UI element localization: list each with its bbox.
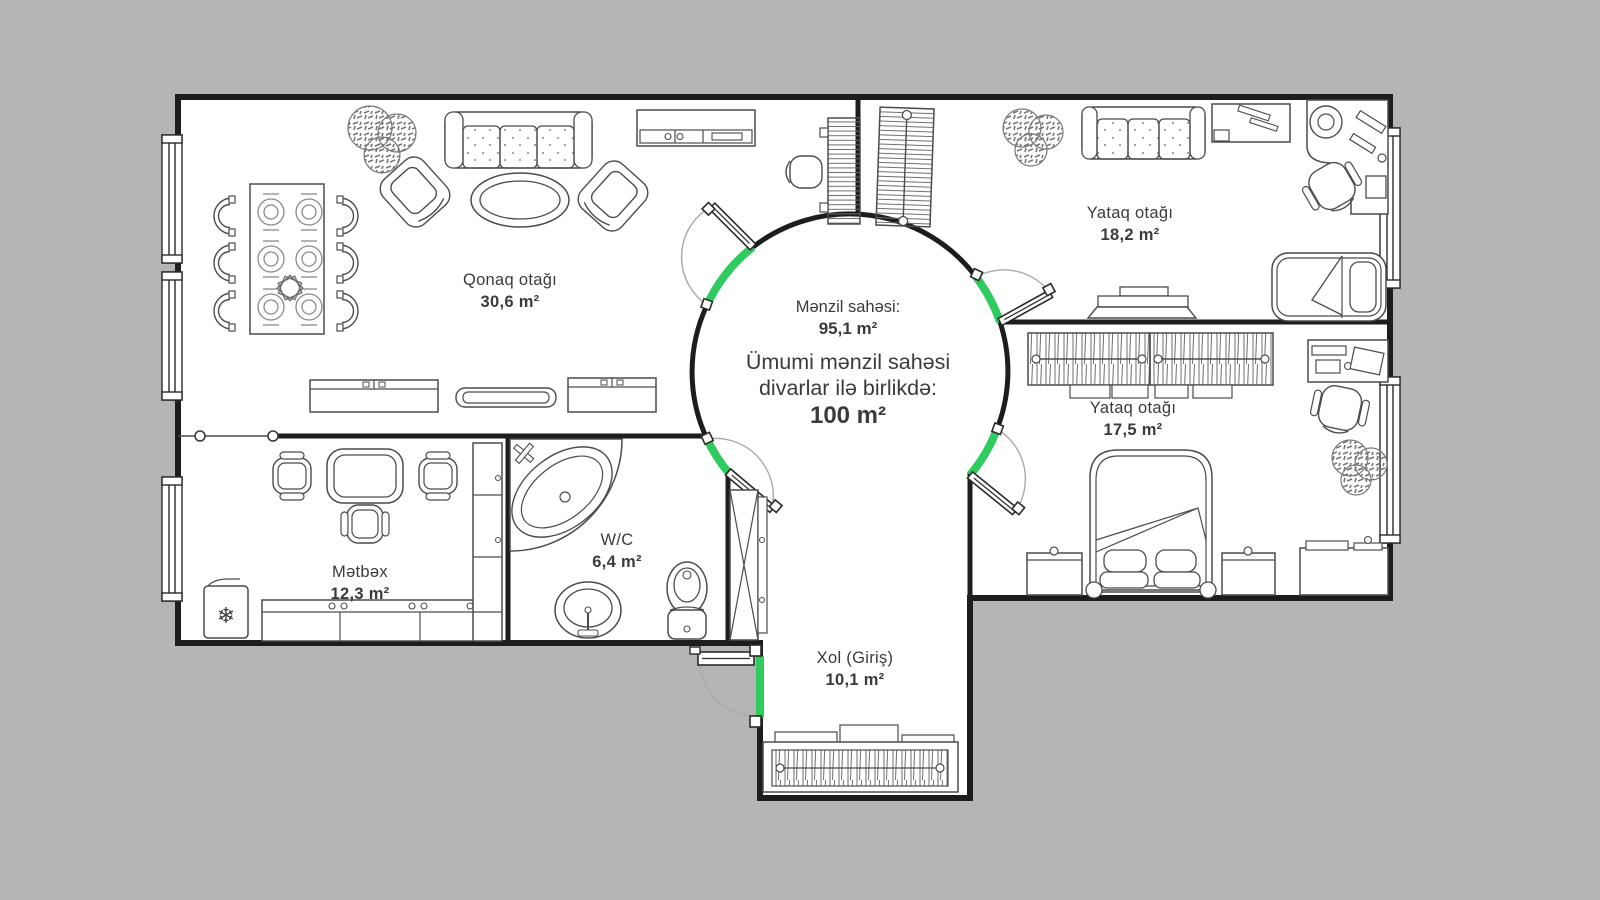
window bbox=[162, 272, 182, 400]
toilet bbox=[667, 562, 707, 639]
fridge: ❄ bbox=[204, 579, 248, 638]
apartment-outline bbox=[178, 97, 1390, 798]
room-name: Xol (Giriş) bbox=[817, 648, 894, 670]
room-area: 30,6 m² bbox=[463, 292, 557, 314]
shoe-cabinet bbox=[763, 725, 958, 792]
window bbox=[162, 135, 182, 263]
coffee-rug bbox=[471, 173, 569, 227]
tv-console bbox=[637, 110, 755, 146]
summary-gross-area-value: 100 m² bbox=[746, 401, 950, 431]
double-bed bbox=[1086, 450, 1216, 598]
floor-plan-drawing: ❄ bbox=[0, 0, 1600, 900]
kitchen-table bbox=[327, 449, 403, 503]
room-area: 18,2 m² bbox=[1087, 225, 1173, 247]
kitchen-chair bbox=[419, 452, 457, 500]
window bbox=[162, 477, 182, 601]
room-label-kitchen: Mətbəx 12,3 m² bbox=[331, 562, 390, 606]
room-name: Yataq otağı bbox=[1090, 398, 1176, 420]
mirror-wardrobe bbox=[730, 490, 767, 640]
nightstand bbox=[1222, 547, 1275, 595]
room-label-wc: W/C 6,4 m² bbox=[592, 530, 642, 574]
kitchen-counter bbox=[262, 600, 500, 641]
sofa bbox=[445, 112, 592, 168]
room-area: 6,4 m² bbox=[592, 552, 642, 574]
room-area: 10,1 m² bbox=[817, 670, 894, 692]
entrance-door bbox=[690, 645, 764, 727]
room-area: 12,3 m² bbox=[331, 584, 390, 606]
changing-table bbox=[1212, 104, 1290, 142]
dining-table bbox=[250, 184, 324, 334]
tall-cabinet bbox=[473, 443, 502, 641]
pillow bbox=[1156, 550, 1196, 572]
pillow bbox=[1350, 262, 1376, 312]
room-label-hall: Xol (Giriş) 10,1 m² bbox=[817, 648, 894, 692]
bathroom-sink bbox=[555, 582, 621, 638]
room-label-bedroom1: Yataq otağı 18,2 m² bbox=[1087, 203, 1173, 247]
summary-gross-line1: Ümumi mənzil sahəsi bbox=[746, 349, 950, 375]
room-area: 17,5 m² bbox=[1090, 420, 1176, 442]
summary-net-area-label: Mənzil sahəsi: bbox=[746, 297, 950, 318]
room-name: Mətbəx bbox=[331, 562, 390, 584]
sideboard bbox=[310, 380, 438, 412]
room-name: Qonaq otağı bbox=[463, 270, 557, 292]
entrance-door-opening bbox=[756, 656, 764, 718]
keyboard bbox=[1316, 360, 1340, 373]
room-label-bedroom2: Yataq otağı 17,5 m² bbox=[1090, 398, 1176, 442]
room-label-living: Qonaq otağı 30,6 m² bbox=[463, 270, 557, 314]
drying-rack bbox=[876, 107, 934, 227]
summary-net-area-value: 95,1 m² bbox=[746, 318, 950, 340]
desk-lamp bbox=[1310, 106, 1342, 138]
single-bed bbox=[1272, 253, 1386, 321]
sofa bbox=[1082, 107, 1205, 159]
snowflake-icon: ❄ bbox=[217, 603, 235, 628]
nightstand bbox=[1027, 547, 1082, 595]
pillow bbox=[1104, 550, 1146, 572]
dresser bbox=[1300, 537, 1388, 596]
floor-plan-canvas: ❄ bbox=[0, 0, 1600, 900]
side-chair bbox=[786, 156, 822, 188]
low-table bbox=[456, 388, 556, 407]
computer-desk bbox=[1308, 340, 1388, 382]
room-name: Yataq otağı bbox=[1087, 203, 1173, 225]
summary-gross-line2: divarlar ilə birlikdə: bbox=[746, 375, 950, 401]
monitor bbox=[1312, 346, 1346, 355]
kitchen-chair bbox=[273, 452, 311, 500]
kitchen-chair bbox=[341, 505, 389, 543]
apartment-summary: Mənzil sahəsi: 95,1 m² Ümumi mənzil sahə… bbox=[746, 297, 950, 431]
sideboard bbox=[568, 378, 656, 412]
room-name: W/C bbox=[592, 530, 642, 552]
